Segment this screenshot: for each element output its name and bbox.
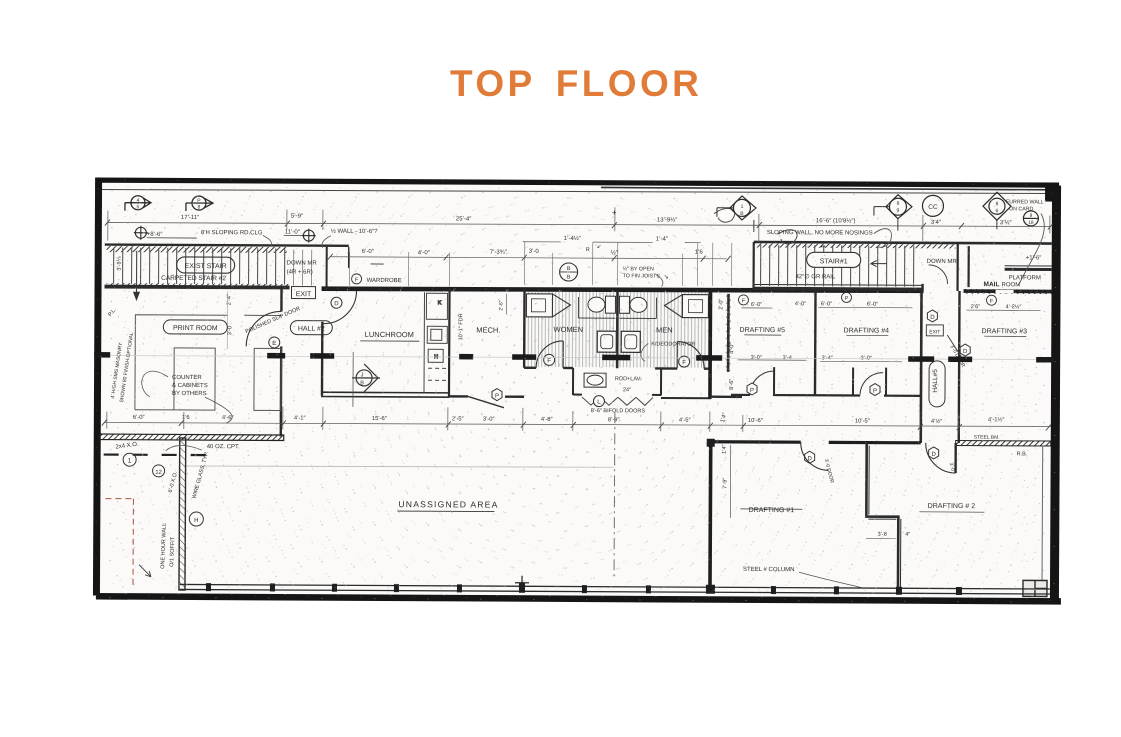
svg-text:3’-9⅕: 3’-9⅕ bbox=[117, 255, 123, 270]
